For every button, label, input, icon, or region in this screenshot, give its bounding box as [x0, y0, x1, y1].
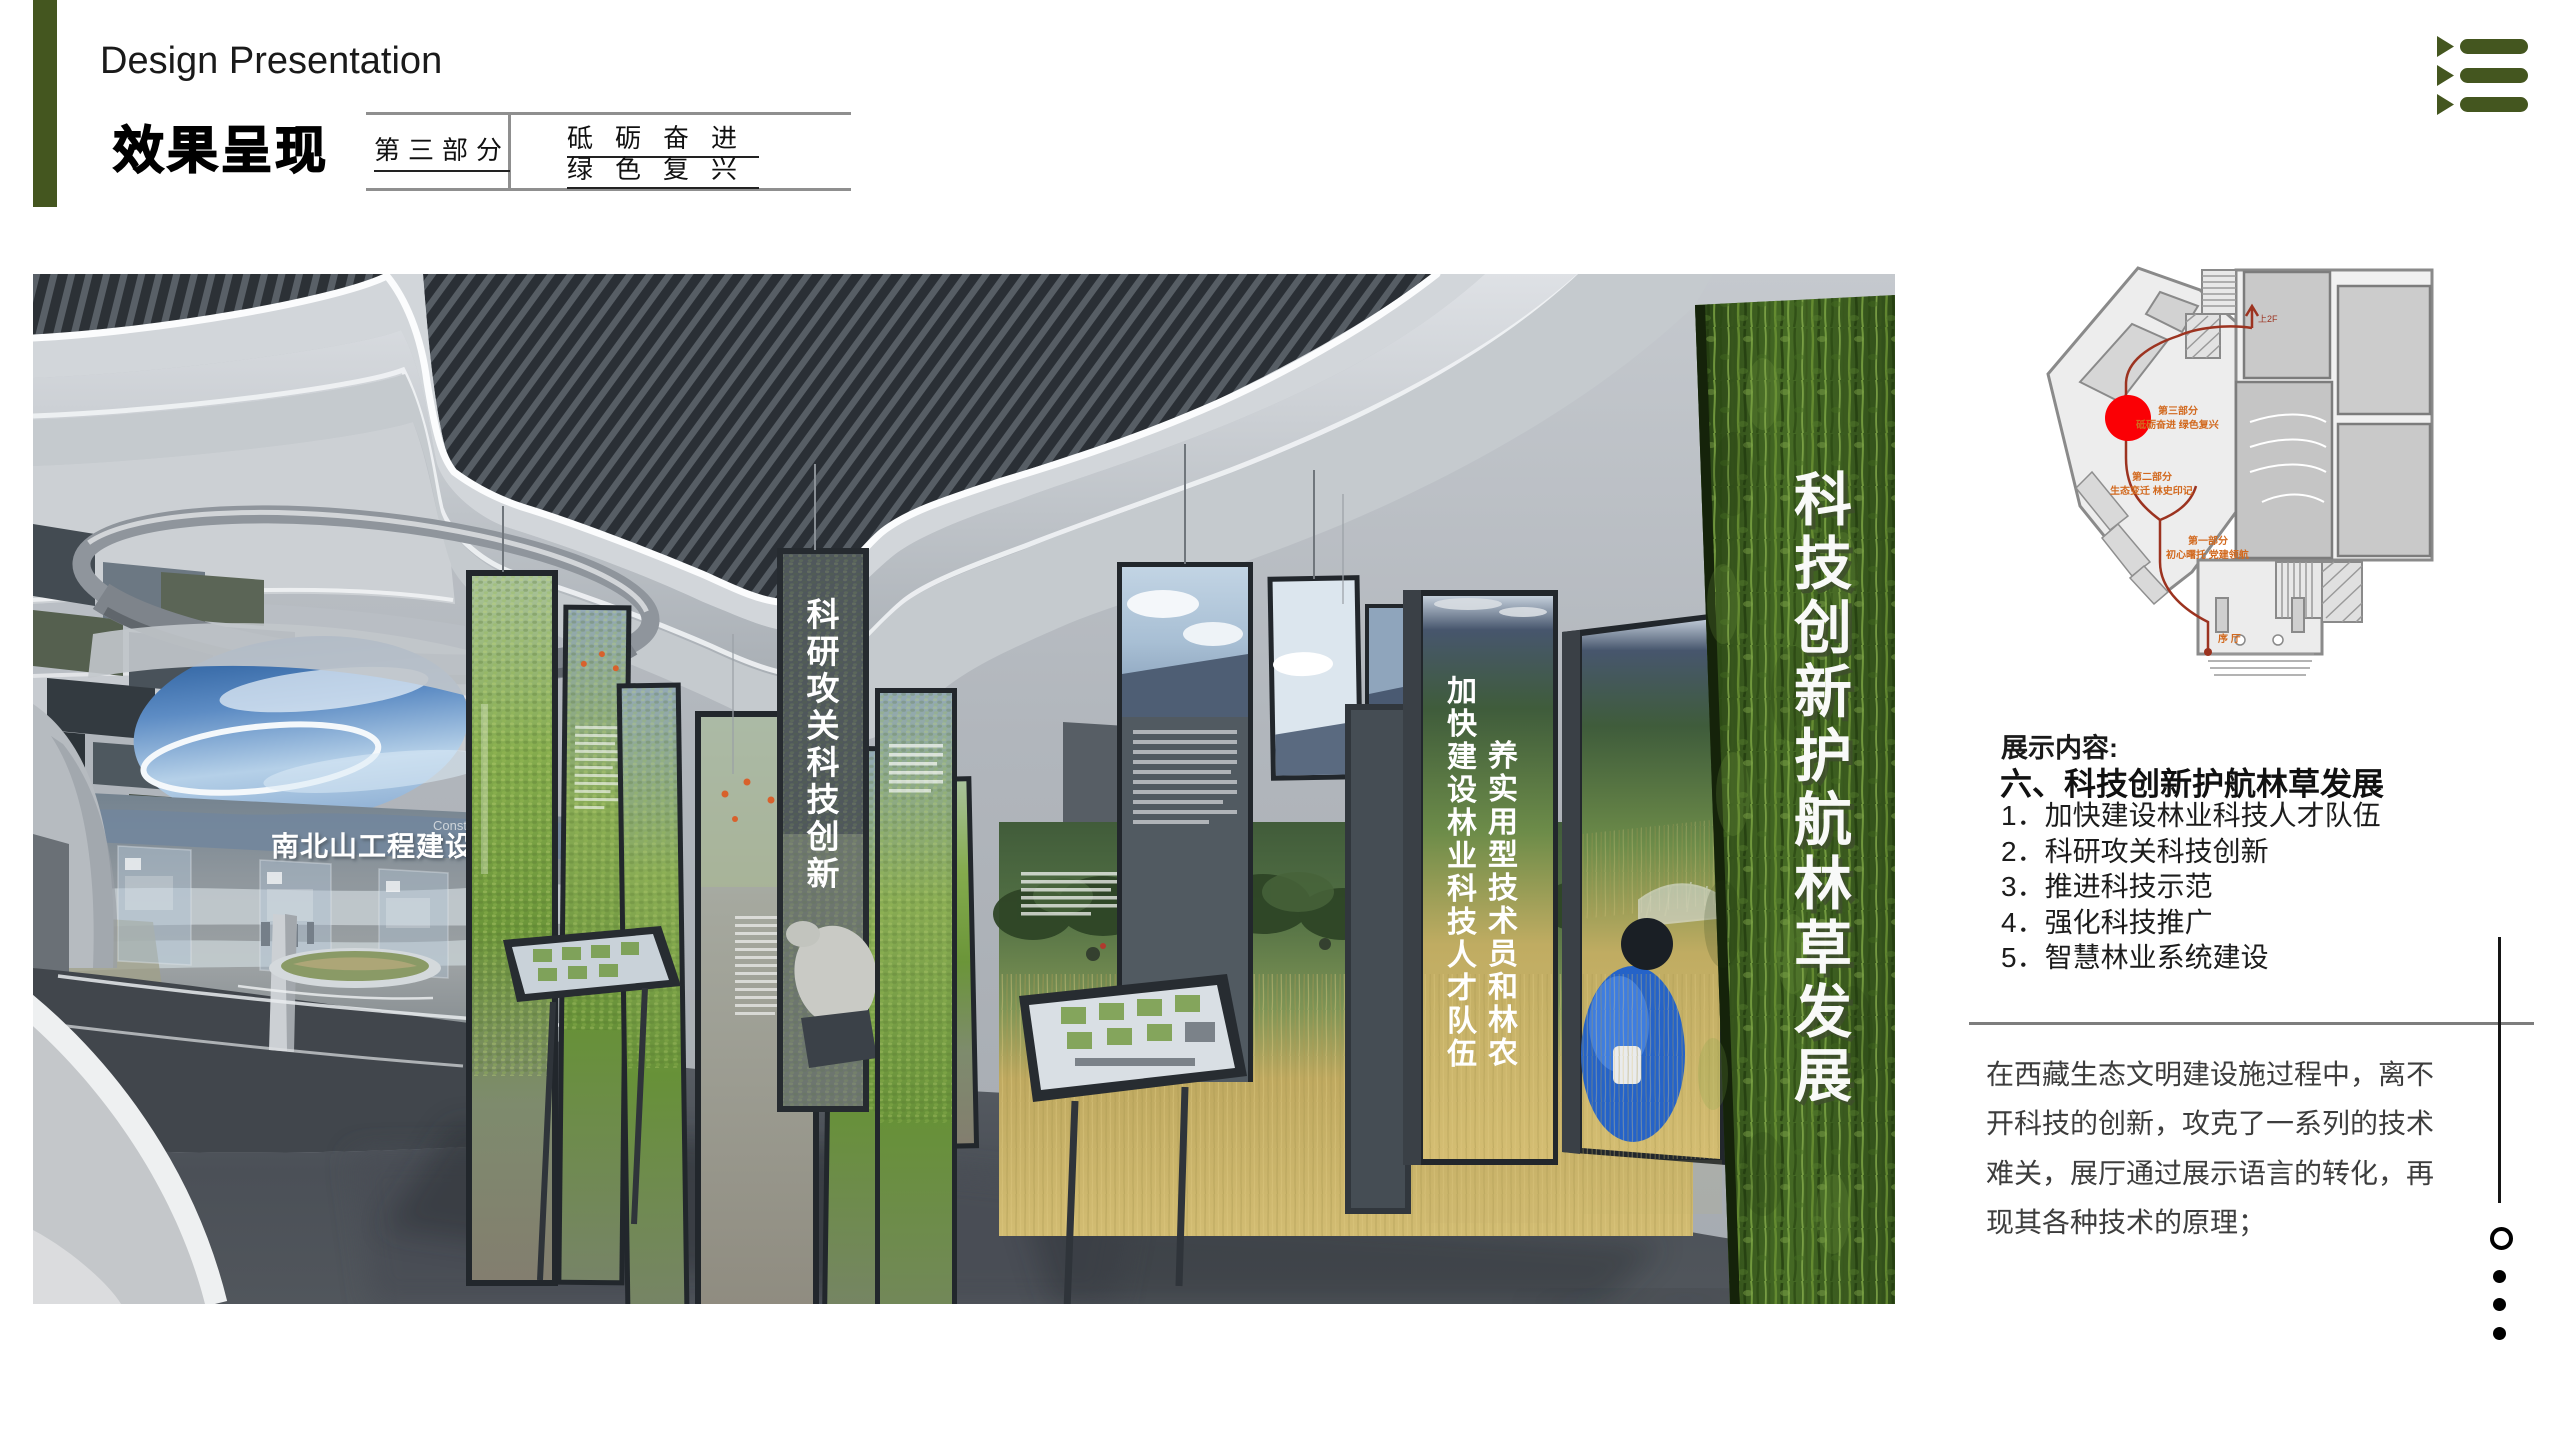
svg-text:养实用型技术员和林农: 养实用型技术员和林农: [1487, 731, 1518, 1072]
svg-text:初心曙托 党建领航: 初心曙托 党建领航: [2166, 546, 2249, 561]
svg-text:砥砺奋进 绿色复兴: 砥砺奋进 绿色复兴: [2136, 416, 2219, 431]
svg-text:第三部分: 第三部分: [2158, 402, 2198, 417]
svg-text:生态变迁 林史印记: 生态变迁 林史印记: [2110, 482, 2193, 497]
svg-text:序 厅: 序 厅: [2218, 630, 2241, 645]
svg-text:第一部分: 第一部分: [2188, 532, 2228, 547]
svg-text:上2F: 上2F: [2258, 312, 2278, 325]
svg-text:第二部分: 第二部分: [2132, 468, 2172, 483]
svg-text:科研攻关科技创新: 科研攻关科技创新: [806, 588, 841, 895]
svg-text:科技创新护航林草发展: 科技创新护航林草发展: [1793, 453, 1852, 1113]
svg-text:加快建设林业科技人才队伍: 加快建设林业科技人才队伍: [1447, 666, 1478, 1073]
